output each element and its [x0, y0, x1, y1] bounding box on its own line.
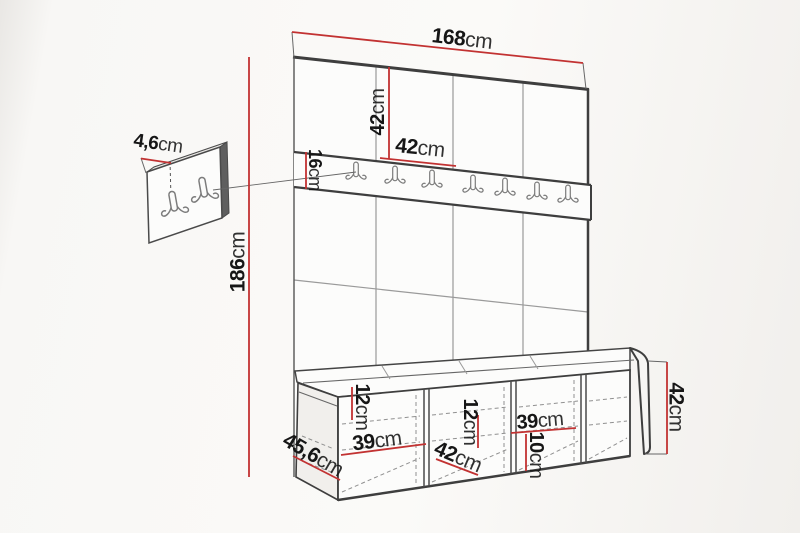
dim-label-panel-width: 42cm — [394, 135, 445, 161]
dim-label-shelf-gap-left: 12cm — [352, 384, 372, 431]
dim-label-shelf-gap-right: 10cm — [526, 432, 546, 479]
dim-label-comp-width-right: 39cm — [516, 409, 564, 433]
dim-label-rail-height: 16cm — [306, 149, 324, 191]
dim-line-panel-thickness — [141, 159, 171, 164]
dim-label-panel-height: 42cm — [368, 89, 388, 136]
dim-label-shelf-gap-middle: 12cm — [460, 399, 480, 446]
diagram-canvas: 168cm 42cm 42cm 16cm 4,6cm 186cm 12cm 39… — [0, 0, 800, 533]
dim-label-bench-height: 42cm — [666, 382, 687, 431]
dim-label-total-height: 186cm — [228, 232, 249, 293]
furniture-line-drawing — [0, 0, 800, 533]
